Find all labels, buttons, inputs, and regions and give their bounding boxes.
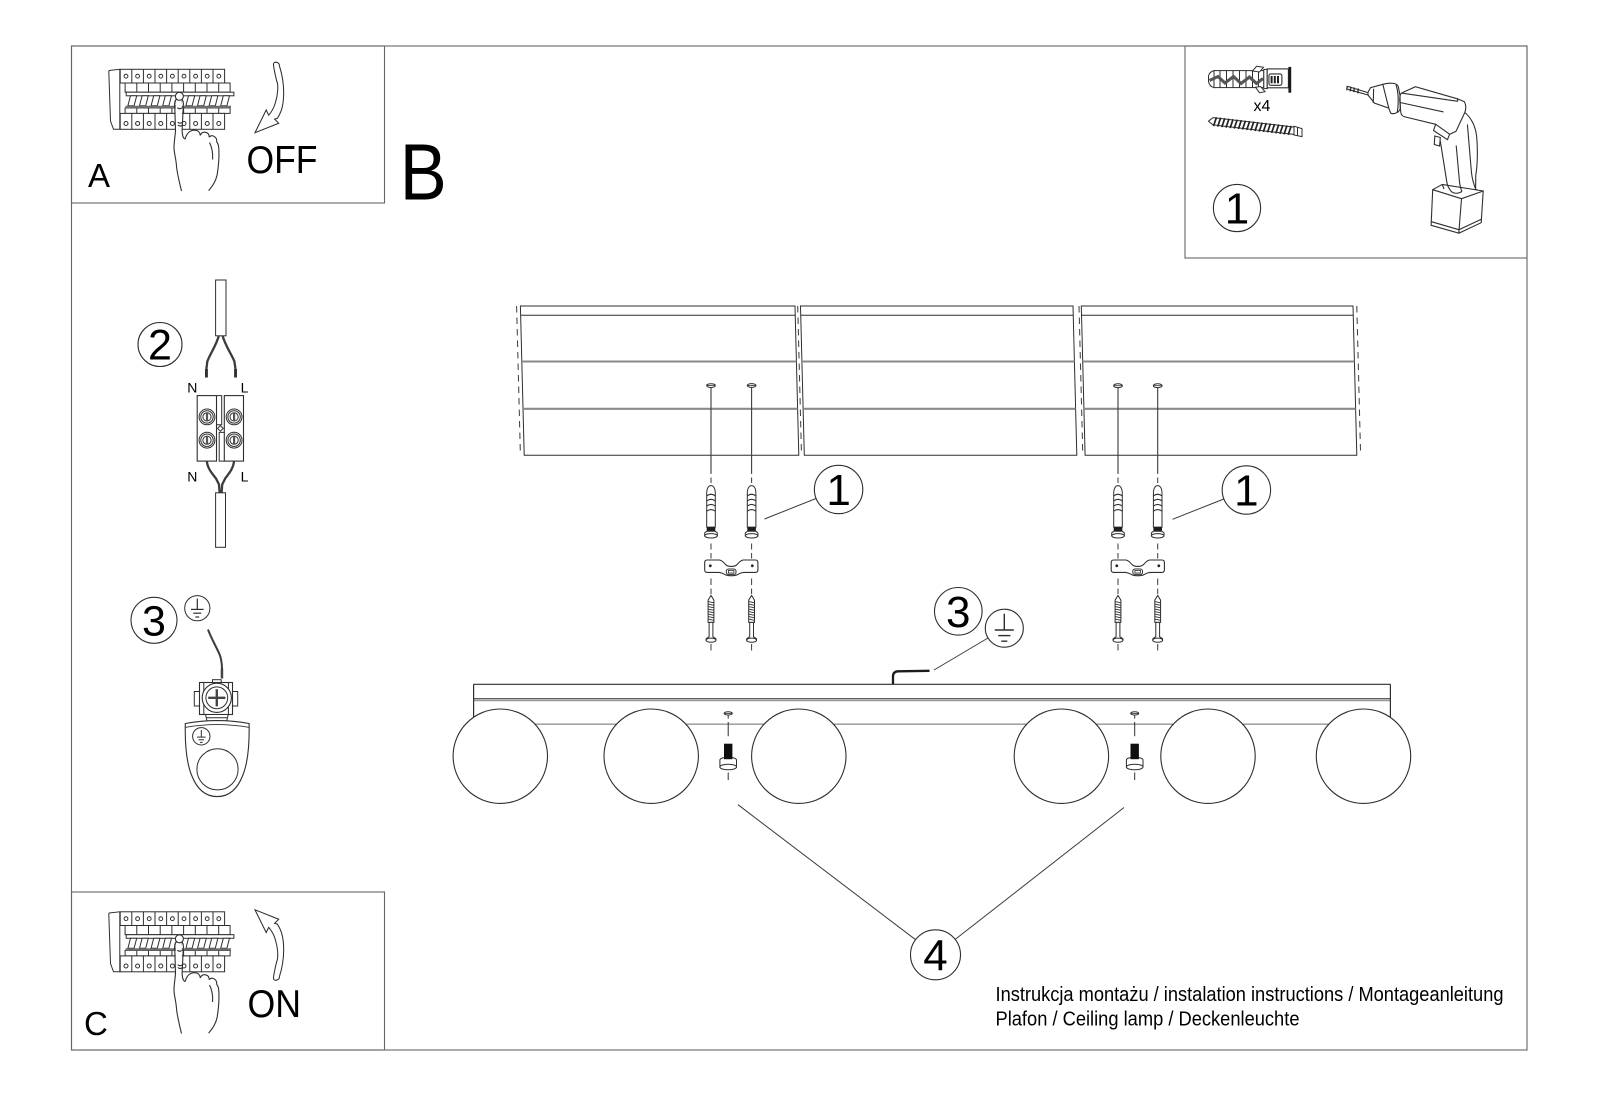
- svg-text:1: 1: [826, 466, 850, 515]
- svg-text:4: 4: [923, 932, 947, 981]
- svg-text:1: 1: [1234, 467, 1258, 516]
- svg-text:L: L: [241, 380, 249, 396]
- svg-text:N: N: [187, 468, 197, 484]
- svg-text:x4: x4: [1254, 98, 1271, 115]
- svg-text:ON: ON: [248, 983, 302, 1026]
- svg-text:N: N: [187, 380, 197, 396]
- svg-text:3: 3: [946, 588, 970, 637]
- svg-text:OFF: OFF: [247, 139, 318, 182]
- svg-text:C: C: [84, 1005, 108, 1042]
- svg-text:L: L: [241, 468, 249, 484]
- svg-text:Instrukcja montażu / instalati: Instrukcja montażu / instalation instruc…: [996, 984, 1504, 1006]
- svg-text:3: 3: [142, 598, 166, 646]
- svg-text:1: 1: [1225, 185, 1249, 234]
- svg-text:B: B: [400, 128, 447, 217]
- svg-text:Plafon / Ceiling lamp / Decken: Plafon / Ceiling lamp / Deckenleuchte: [996, 1009, 1300, 1031]
- svg-text:2: 2: [148, 322, 172, 370]
- svg-text:A: A: [88, 157, 110, 194]
